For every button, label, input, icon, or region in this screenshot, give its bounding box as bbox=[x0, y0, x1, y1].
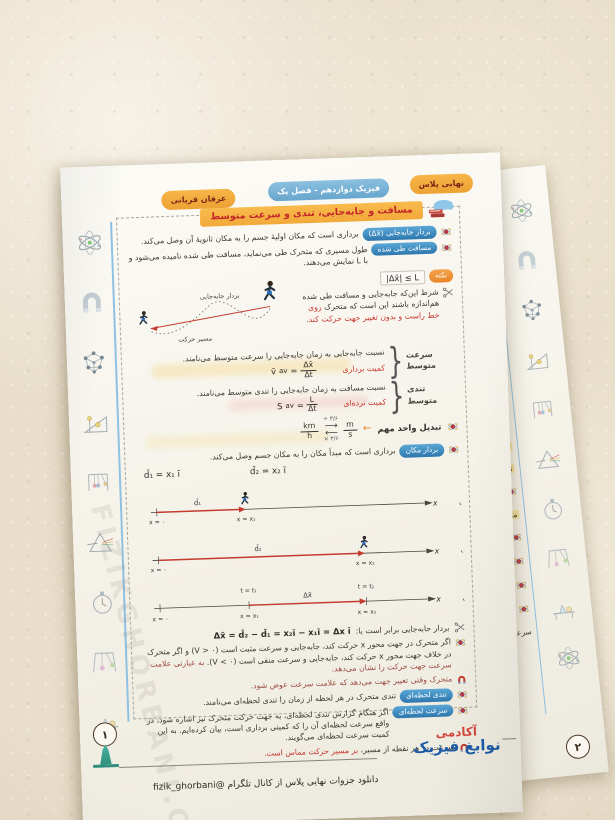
sheet-page-1: نهایی پلاس فیزیک دوازدهم - فصل یک عرفان … bbox=[60, 152, 523, 820]
brace: } bbox=[388, 378, 405, 415]
tab-label: نهایی پلاس bbox=[418, 179, 464, 190]
axis-diagram-b: x ب d̄₂ x = ۰ x = x₂ bbox=[134, 522, 463, 575]
term-label: مسافت طی شده bbox=[371, 241, 437, 256]
group-label: تندی متوسط bbox=[407, 382, 458, 407]
tab-label: فیزیک دوازدهم - فصل یک bbox=[277, 184, 380, 197]
vector-label: d̄₂ bbox=[254, 543, 262, 552]
group-body: نسبت جابه‌جایی به زمان جابه‌جایی را سرعت… bbox=[130, 347, 386, 386]
page-number-marker: ۱ bbox=[92, 722, 120, 768]
page-number: ۲ bbox=[574, 740, 582, 754]
horseshoe-magnet-icon bbox=[513, 246, 542, 275]
diagram-name: پ bbox=[462, 593, 465, 602]
quantity-kind: کمیت نرده‌ای bbox=[343, 397, 386, 410]
runner-figure bbox=[361, 535, 367, 547]
atom-bullet-icon bbox=[447, 420, 458, 431]
atom-bullet-icon bbox=[513, 555, 525, 567]
molecule-lattice-icon bbox=[79, 348, 108, 377]
term-label: بردار مکان bbox=[399, 443, 444, 457]
equation-intro: بردار جابه‌جایی برابر است با: bbox=[355, 622, 449, 637]
unit-conversion-label: تبدیل واحد مهم bbox=[377, 420, 441, 434]
newtons-cradle-icon bbox=[84, 468, 113, 497]
lesson-title-bar: مسافت و جابه‌جایی، تندی و سرعت متوسط bbox=[200, 198, 455, 229]
book-cloud-icon bbox=[424, 198, 455, 221]
atom-bullet-icon bbox=[515, 579, 527, 591]
formula: v̄av= Δx̄Δt bbox=[271, 361, 317, 381]
runner-figure bbox=[242, 492, 248, 504]
page-number-badge: ۱ bbox=[93, 722, 118, 747]
conversion-arrows: ÷ ۳/۶ ⟶⟵ × ۳/۶ bbox=[323, 417, 339, 443]
inclined-plane-icon bbox=[523, 346, 552, 375]
position-label-2: x = x₂ bbox=[357, 608, 377, 616]
note-and-diagram-block: نکته |Δx̄| ≤ L شرط این‌که جابه‌جایی و مس… bbox=[127, 266, 455, 351]
note-formula: |Δx̄| ≤ L bbox=[380, 270, 425, 286]
path-label: مسیر حرکت bbox=[178, 335, 212, 344]
origin-label: x = ۰ bbox=[149, 519, 165, 527]
lesson-content-box: مسافت و جابه‌جایی، تندی و سرعت متوسط برد… bbox=[116, 206, 477, 720]
origin-label: x = ۰ bbox=[152, 616, 168, 624]
horseshoe-magnet-icon bbox=[77, 288, 106, 317]
definition-text: اگر هنگام گزارش تندی لحظه‌ای، به جهت حرک… bbox=[142, 706, 389, 748]
time-label-2: t = t₂ bbox=[358, 583, 375, 591]
footer-divider bbox=[502, 738, 516, 739]
atom-bullet-icon bbox=[518, 603, 530, 615]
multiply-factor: × ۳/۶ bbox=[324, 437, 339, 443]
note-label: نکته bbox=[429, 269, 454, 282]
molecule-lattice-icon bbox=[518, 296, 547, 325]
group-body: نسبت مسافت به زمان جابه‌جایی را تندی متو… bbox=[131, 381, 387, 420]
page-number-pedestal bbox=[98, 744, 114, 765]
diagram-name: الف bbox=[459, 498, 462, 507]
tab-book-chapter: فیزیک دوازدهم - فصل یک bbox=[268, 178, 390, 201]
axis-label: x bbox=[432, 499, 438, 508]
term-label: بردار جابه‌جایی (Δx̄) bbox=[362, 226, 436, 241]
pendulum-icon bbox=[544, 544, 573, 573]
page-number-badge: ۲ bbox=[565, 734, 591, 760]
axis-diagram-a: x الف d̄₁ x = ۰ x = x₁ bbox=[132, 475, 461, 528]
position-label: x = x₂ bbox=[356, 559, 376, 567]
logo-line-2: نوابغ فیزیک bbox=[413, 737, 501, 756]
d1-formula: d̄₁ = x₁ ī bbox=[144, 468, 180, 482]
atom-icon bbox=[507, 196, 536, 225]
inclined-plane-icon bbox=[82, 408, 111, 437]
group-label: سرعت متوسط bbox=[406, 348, 457, 373]
margin-icon-strip bbox=[72, 228, 124, 737]
time-label-1: t = t₁ bbox=[240, 587, 257, 595]
atom-bullet-icon bbox=[441, 242, 452, 253]
formula: Sav= LΔt bbox=[277, 396, 318, 416]
d2-formula: d̄₂ = x₂ ī bbox=[250, 465, 286, 479]
unit-s: s bbox=[348, 430, 352, 439]
axis-diagram-p: x پ t = t₁ t = t₂ Δx̄ x = ۰ x = x₁ x = x… bbox=[136, 570, 465, 625]
academy-logo: آکادمی نوابغ فیزیک bbox=[412, 725, 500, 756]
atom-bullet-icon bbox=[457, 689, 468, 700]
condition-text: شرط این‌که جابه‌جایی و مسافت طی شده هم‌ا… bbox=[298, 287, 440, 326]
condition-part1: شرط این‌که جابه‌جایی و مسافت طی شده هم‌ا… bbox=[302, 288, 439, 312]
quantity-kind: کمیت برداری bbox=[342, 362, 385, 375]
atom-bullet-icon bbox=[448, 444, 459, 455]
definition-text: برداری است که مبدأ مکان را به مکان جسم و… bbox=[210, 445, 396, 463]
page-number: ۱ bbox=[101, 728, 108, 741]
prism-icon bbox=[533, 445, 562, 474]
vector-label: بردار جابه‌جایی bbox=[200, 292, 240, 301]
denominator: Δt bbox=[308, 405, 317, 414]
vector-label: Δx̄ bbox=[303, 591, 312, 599]
formula-subscript: av bbox=[285, 401, 294, 411]
condition-row: شرط این‌که جابه‌جایی و مسافت طی شده هم‌ا… bbox=[298, 286, 455, 325]
scissors-icon bbox=[454, 622, 465, 633]
atom-bullet-icon bbox=[457, 705, 468, 716]
term-label: سرعت لحظه‌ای bbox=[393, 704, 454, 719]
unit-h: h bbox=[307, 432, 312, 441]
position-label: x = x₁ bbox=[237, 516, 257, 524]
displacement-equation: Δx̄ = d̄₂ − d̄₁ = x₂ī − x₁ī = Δx ī bbox=[213, 625, 350, 642]
atom-icon bbox=[554, 644, 583, 673]
lesson-title: مسافت و جابه‌جایی، تندی و سرعت متوسط bbox=[200, 201, 423, 227]
tab-nahayi-plus: نهایی پلاس bbox=[409, 173, 473, 194]
formula-symbol: v̄ bbox=[271, 366, 276, 378]
pointer-arrow-icon: ← bbox=[363, 422, 372, 437]
atom-icon bbox=[75, 228, 104, 257]
origin-label: x = ۰ bbox=[151, 566, 167, 574]
unit-conversion-diagram: kmh ÷ ۳/۶ ⟶⟵ × ۳/۶ ms bbox=[300, 417, 357, 445]
tab-label: عرفان قربانی bbox=[171, 194, 227, 205]
newtons-cradle-icon bbox=[528, 395, 557, 424]
runner-figure bbox=[264, 281, 274, 299]
term-label: تندی لحظه‌ای bbox=[400, 689, 453, 703]
tangent-part2: بر مسیر حرکت مماس است. bbox=[264, 745, 358, 757]
magnet-bullet-icon bbox=[456, 674, 467, 685]
scissors-icon bbox=[443, 287, 454, 298]
pendulum-icon bbox=[90, 648, 119, 677]
displacement-vs-path-diagram: بردار جابه‌جایی مسیر حرکت bbox=[127, 272, 297, 352]
axis-label: x bbox=[435, 594, 441, 603]
note-row: نکته |Δx̄| ≤ L bbox=[297, 269, 453, 288]
lab-bench-icon bbox=[549, 594, 578, 623]
atom-bullet-icon bbox=[455, 637, 466, 648]
photo-of-physics-worksheet: در دو تندی متوسط که تندی متوسط با در چ م… bbox=[0, 0, 615, 820]
position-label-1: x = x₁ bbox=[240, 613, 260, 621]
atom-bullet-icon bbox=[440, 226, 451, 237]
formula-symbol: S bbox=[277, 400, 283, 412]
vector-label: d̄₁ bbox=[194, 498, 202, 507]
page-number-pedestal-base bbox=[93, 764, 119, 768]
runner-figure bbox=[140, 311, 147, 324]
denominator: Δt bbox=[304, 371, 313, 380]
formula-subscript: av bbox=[279, 366, 288, 376]
diagram-name: ب bbox=[461, 545, 464, 554]
stopwatch-icon bbox=[539, 495, 568, 524]
axis-label: x bbox=[433, 546, 439, 555]
note-column: نکته |Δx̄| ≤ L شرط این‌که جابه‌جایی و مس… bbox=[297, 266, 455, 328]
